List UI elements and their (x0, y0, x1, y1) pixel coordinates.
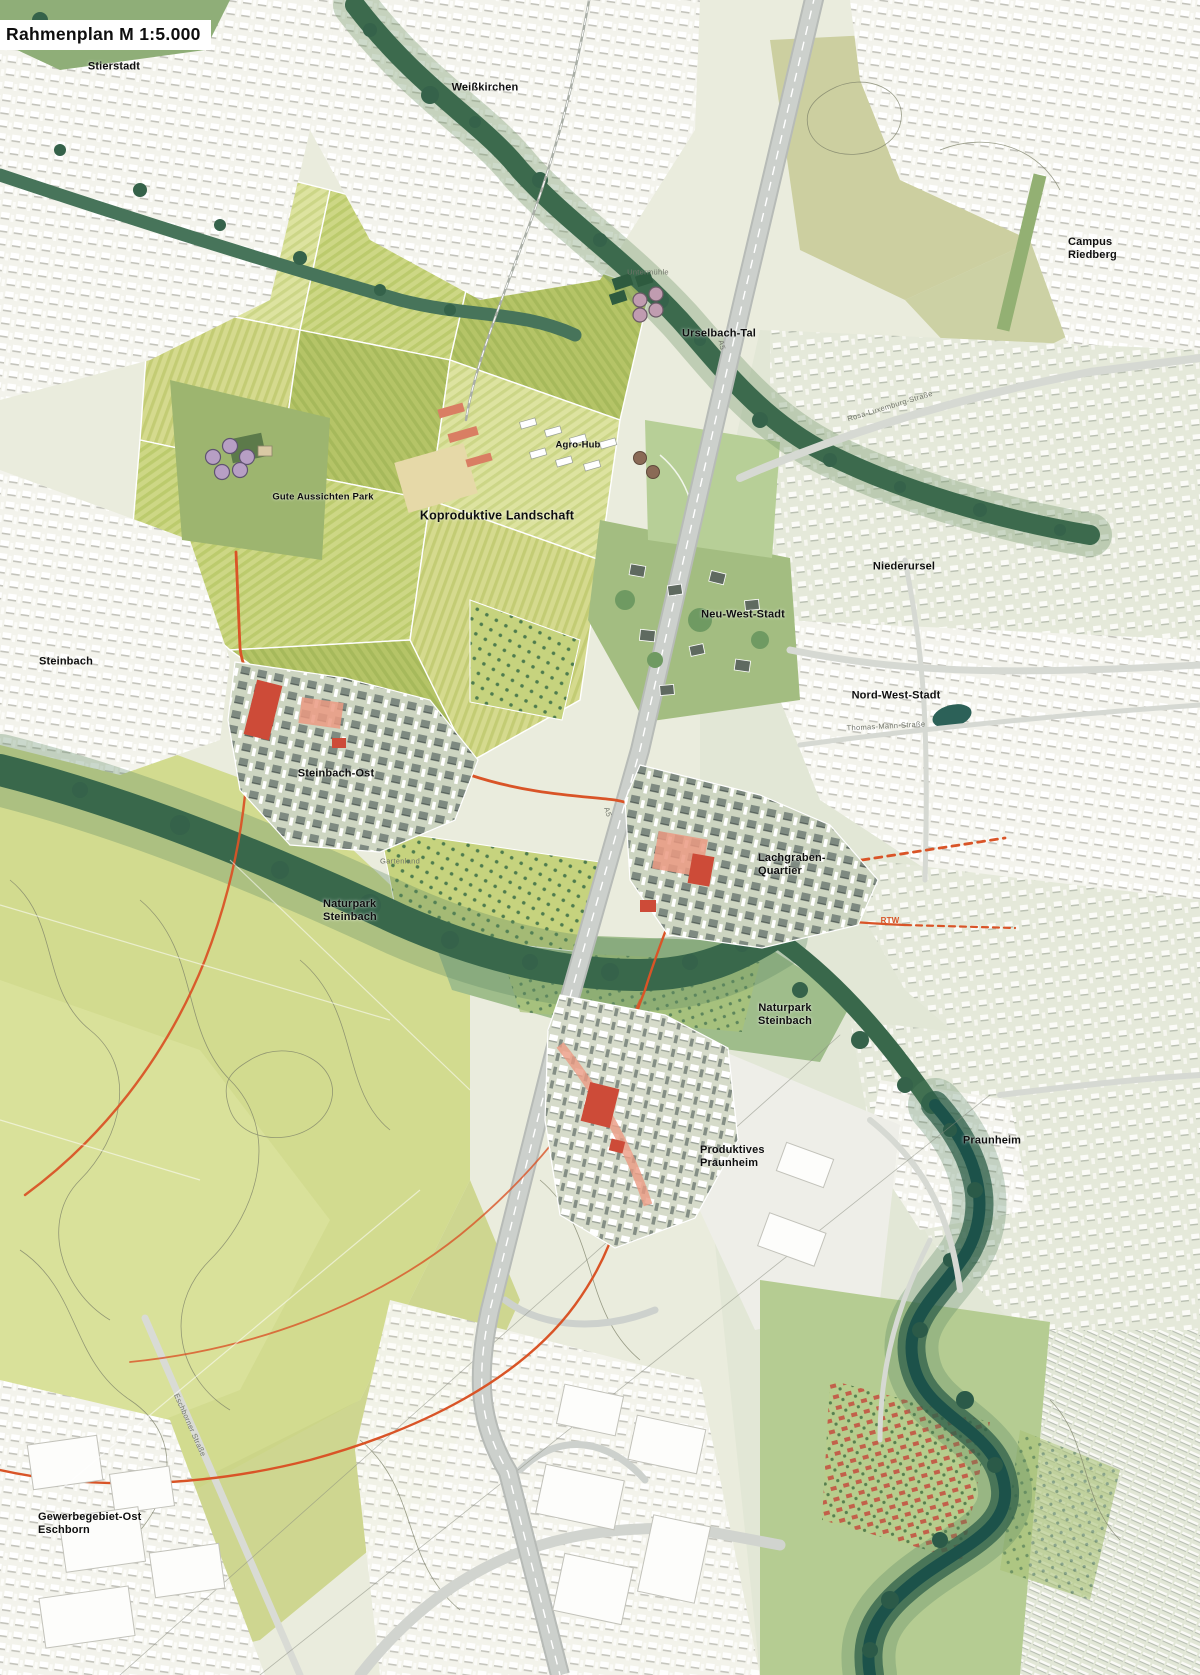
region-label-gute-aussichten-park: Gute Aussichten Park (272, 491, 373, 502)
region-label-steinbach: Steinbach (39, 655, 93, 668)
region-label-praunheim: Praunheim (963, 1134, 1021, 1147)
highway-label-a5-north: A5 (717, 339, 728, 351)
rtw-label: RTW (881, 916, 900, 926)
region-label-urselbach-tal: Urselbach-Tal (682, 327, 756, 340)
region-label-weisskirchen: Weißkirchen (452, 81, 519, 94)
region-label-naturpark-steinbach-ost: Naturpark Steinbach (758, 1002, 812, 1028)
region-label-campus-riedberg: Campus Riedberg (1068, 236, 1156, 262)
minor-label-untermuehle: Untermühle (627, 268, 669, 277)
minor-label-gartenland: Gartenland (380, 857, 420, 866)
region-label-produktives-praunheim: Produktives Praunheim (700, 1144, 765, 1170)
region-label-lachgraben-quartier: Lachgraben- Quartier (758, 852, 826, 878)
map-title: Rahmenplan M 1:5.000 (0, 20, 211, 50)
region-label-niederursel: Niederursel (873, 560, 935, 573)
region-label-agro-hub: Agro-Hub (556, 439, 601, 450)
region-label-neu-west-stadt: Neu-West-Stadt (701, 608, 785, 621)
map-canvas (0, 0, 1200, 1675)
rahmenplan-map: Rahmenplan M 1:5.000 Stierstadt Weißkirc… (0, 0, 1200, 1675)
region-label-steinbach-ost: Steinbach-Ost (298, 767, 375, 780)
region-label-gewerbegebiet-ost-eschborn: Gewerbegebiet-Ost Eschborn (38, 1511, 141, 1537)
region-label-nord-west-stadt: Nord-West-Stadt (852, 689, 941, 702)
region-label-stierstadt: Stierstadt (88, 60, 140, 73)
region-label-koproduktive-landschaft: Koproduktive Landschaft (420, 509, 574, 524)
region-label-naturpark-steinbach-west: Naturpark Steinbach (323, 898, 377, 924)
